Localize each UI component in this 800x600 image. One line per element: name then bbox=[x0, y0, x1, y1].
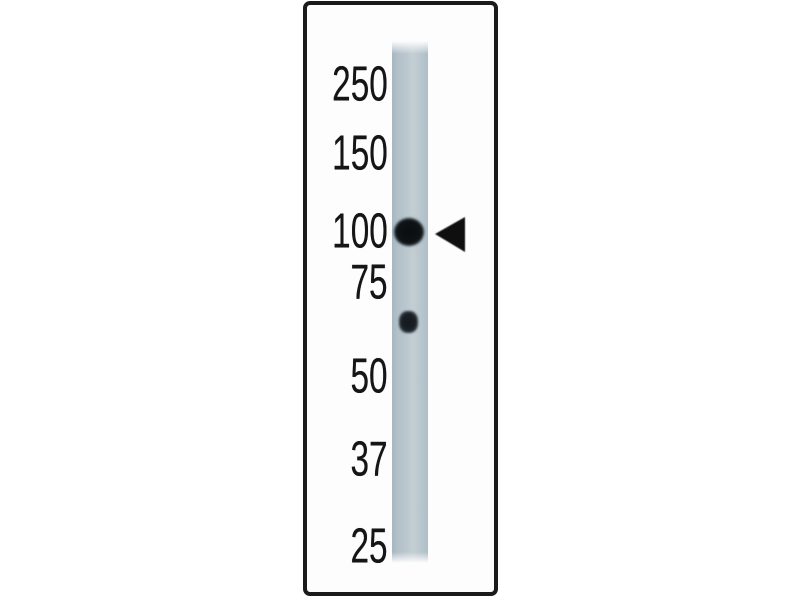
marker-label-37: 37 bbox=[351, 436, 388, 485]
marker-label-100: 100 bbox=[332, 208, 388, 257]
protein-band-weak bbox=[399, 311, 418, 333]
marker-label-25: 25 bbox=[351, 523, 388, 572]
figure-canvas: 250 150 100 75 50 37 25 bbox=[0, 0, 800, 600]
marker-label-250: 250 bbox=[332, 61, 388, 110]
protein-band-strong bbox=[394, 218, 424, 246]
gel-lane bbox=[392, 41, 428, 563]
band-indicator-arrow-icon bbox=[435, 217, 465, 252]
marker-label-150: 150 bbox=[332, 130, 388, 179]
marker-label-75: 75 bbox=[351, 259, 388, 308]
marker-label-50: 50 bbox=[351, 353, 388, 402]
